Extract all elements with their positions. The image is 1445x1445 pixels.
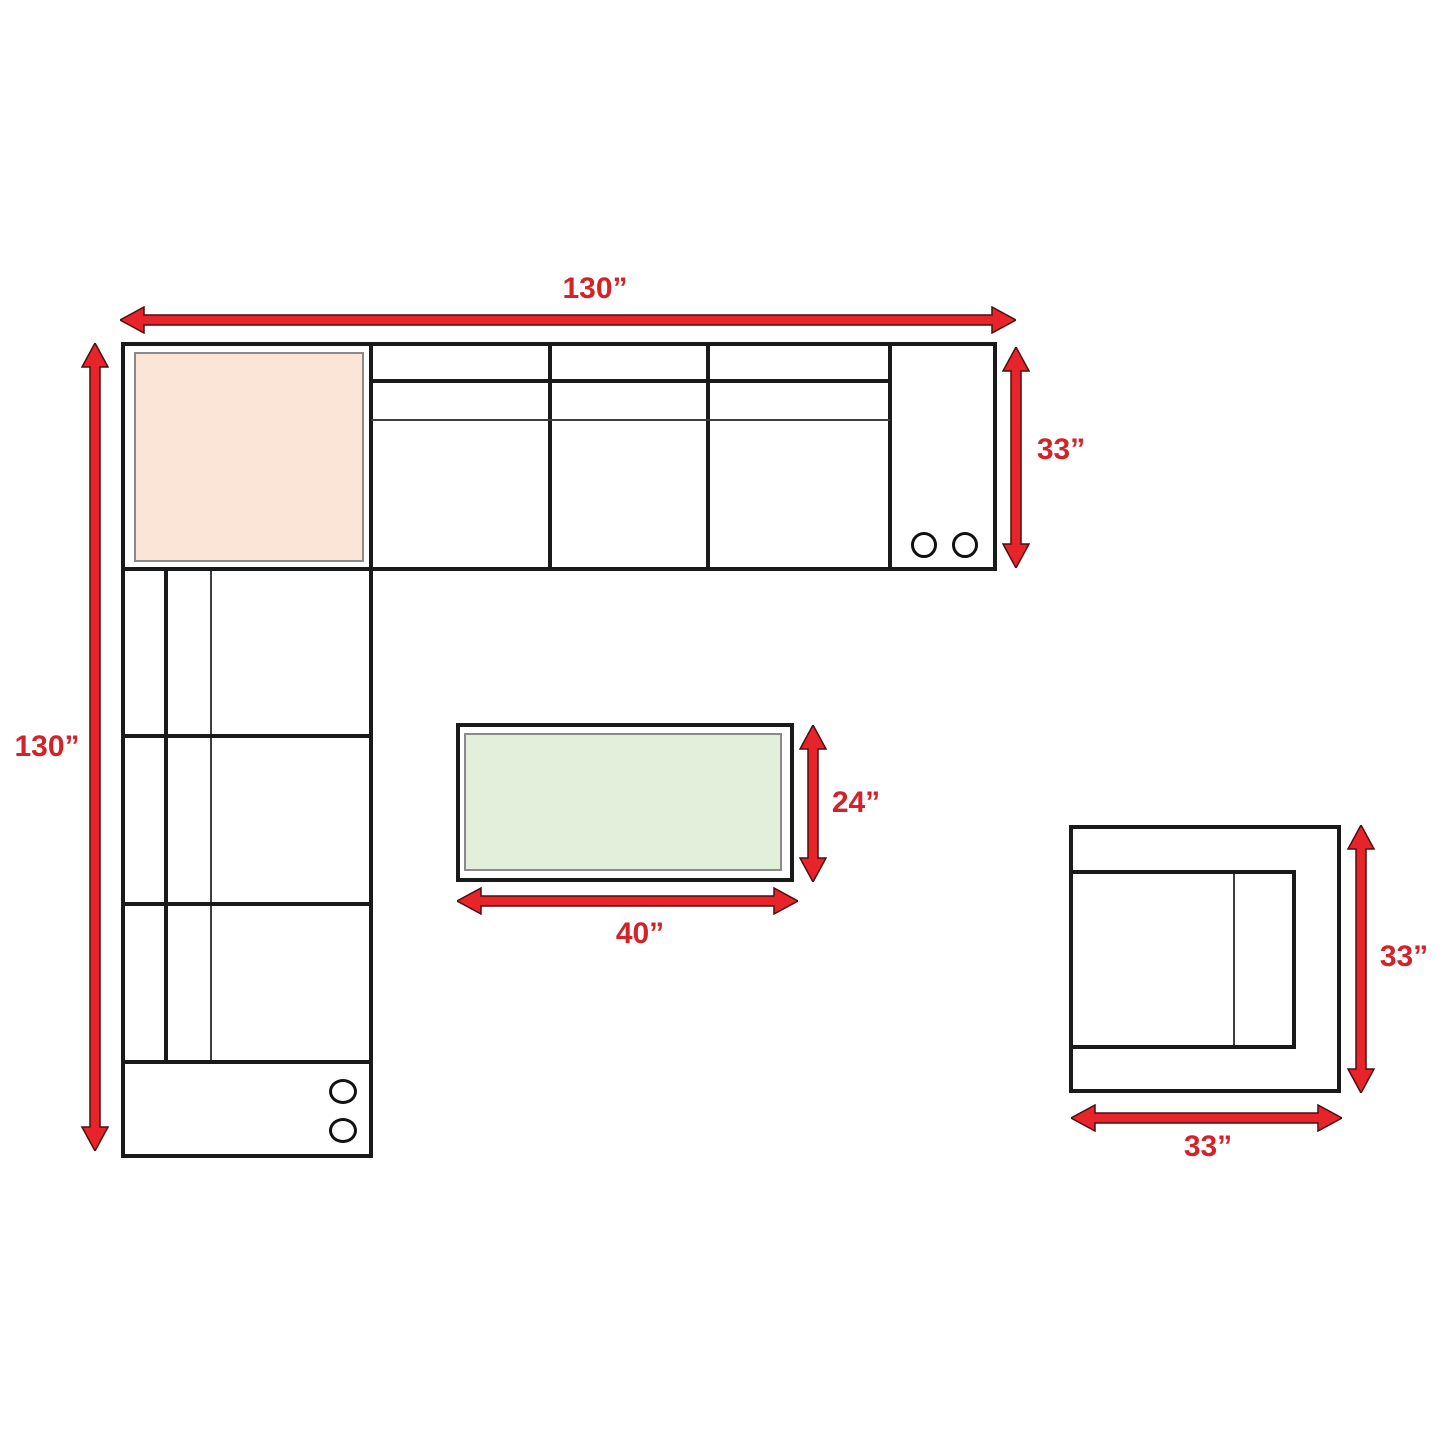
corner-cushion bbox=[134, 352, 364, 562]
sectional-left-outline bbox=[121, 571, 373, 1158]
dimension-label-table-depth: 24” bbox=[832, 788, 880, 818]
dimension-label-sofa-width: 130” bbox=[562, 274, 627, 304]
dimension-label-sofa-length: 130” bbox=[14, 732, 79, 762]
dimension-arrow-chair-width bbox=[1071, 1104, 1342, 1132]
dimension-label-chair-width: 33” bbox=[1184, 1132, 1232, 1162]
seat-divider-line bbox=[121, 734, 373, 738]
dimension-label-chair-depth: 33” bbox=[1380, 942, 1428, 972]
dimension-arrow-table-depth bbox=[799, 725, 827, 882]
backrest-line-thin bbox=[210, 571, 212, 1062]
dimension-label-sofa-depth: 33” bbox=[1037, 435, 1085, 465]
cupholder-icon bbox=[329, 1079, 357, 1104]
seat-divider-line bbox=[548, 342, 552, 571]
furniture-dimension-diagram: 130” 33” 130” 24” 40” 33” 33” bbox=[0, 0, 1445, 1445]
coffee-table-top bbox=[464, 733, 782, 871]
dimension-arrow-sofa-depth bbox=[1002, 347, 1030, 568]
accent-chair-seat bbox=[1069, 870, 1296, 1049]
accent-chair-armrest-line bbox=[1233, 874, 1235, 1045]
cupholder-icon bbox=[911, 532, 937, 558]
cupholder-icon bbox=[952, 532, 978, 558]
seat-divider-line bbox=[121, 902, 373, 906]
backrest-line bbox=[371, 379, 890, 383]
armrest-divider-line bbox=[888, 342, 892, 571]
backrest-line-thin bbox=[371, 419, 890, 421]
dimension-arrow-table-width bbox=[457, 887, 798, 915]
backrest-line bbox=[164, 571, 168, 1062]
armrest-divider-line bbox=[121, 1060, 373, 1064]
seat-divider-line bbox=[706, 342, 710, 571]
cupholder-icon bbox=[329, 1118, 357, 1143]
dimension-arrow-chair-depth bbox=[1347, 825, 1375, 1093]
dimension-arrow-top-width bbox=[120, 306, 1016, 334]
corner-divider-line bbox=[369, 342, 373, 571]
dimension-label-table-width: 40” bbox=[616, 919, 664, 949]
dimension-arrow-left-length bbox=[81, 343, 109, 1151]
